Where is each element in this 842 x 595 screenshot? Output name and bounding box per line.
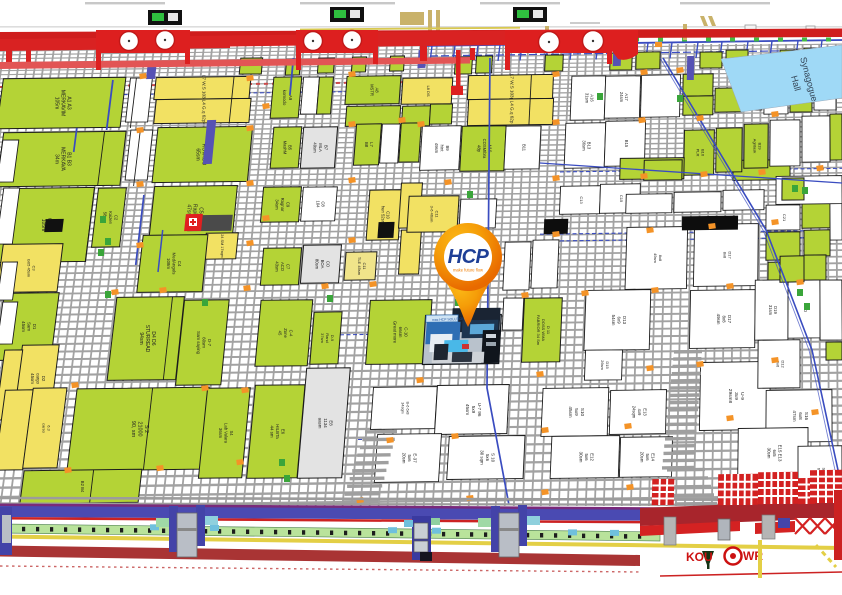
svg-text:cargo: cargo: [36, 373, 41, 385]
svg-text:C10: C10: [386, 211, 391, 219]
svg-text:45sm: 45sm: [568, 406, 573, 417]
svg-text:A8: A8: [375, 87, 380, 93]
svg-text:CO: CO: [325, 261, 330, 268]
svg-text:HILBTa: HILBTa: [275, 424, 280, 439]
svg-text:C15: C15: [619, 195, 624, 203]
svg-text:49sm: 49sm: [313, 142, 318, 153]
svg-text:D1: D1: [32, 324, 37, 330]
svg-text:D-7: D-7: [207, 339, 212, 347]
svg-text:105m: 105m: [53, 97, 59, 110]
svg-text:45sm: 45sm: [465, 404, 470, 415]
svg-text:L7 W.S 103p: L7 W.S 103p: [202, 75, 207, 102]
svg-text:STURREAD: STURREAD: [144, 325, 150, 353]
svg-text:65sm: 65sm: [194, 148, 200, 160]
svg-text:24sqm: 24sqm: [632, 406, 637, 419]
svg-text:C-10: C-10: [404, 327, 409, 337]
svg-text:B1 B3: B1 B3: [66, 152, 72, 166]
svg-text:A16: A16: [590, 94, 595, 102]
svg-text:E6: E6: [281, 429, 286, 435]
svg-text:30sm: 30sm: [578, 452, 583, 463]
svg-text:S4: S4: [229, 430, 234, 436]
svg-text:60sm: 60sm: [202, 337, 207, 348]
svg-text:L4 G.q 62p: L4 G.q 62p: [202, 100, 207, 123]
svg-text:21000: 21000: [137, 422, 143, 437]
svg-text:B2 B4: B2 B4: [80, 481, 85, 493]
svg-text:U-7 96: U-7 96: [477, 403, 482, 417]
svg-text:PLR: PLR: [695, 149, 700, 157]
svg-text:B8: B8: [364, 142, 369, 148]
svg-text:44 sm: 44 sm: [269, 426, 274, 438]
svg-text:MSTR: MSTR: [369, 84, 374, 96]
svg-text:B5: B5: [288, 145, 293, 151]
svg-text:49sm: 49sm: [434, 143, 439, 154]
svg-text:B7: B7: [323, 145, 328, 151]
svg-text:TLE 45sm: TLE 45sm: [357, 257, 362, 276]
svg-text:5x6: 5x6: [645, 453, 650, 461]
svg-text:3-6 46sm: 3-6 46sm: [429, 206, 434, 223]
svg-text:43sm: 43sm: [275, 261, 280, 272]
svg-text:5x6: 5x6: [584, 453, 589, 461]
svg-text:5x9: 5x9: [574, 408, 579, 416]
svg-text:20sm: 20sm: [639, 452, 644, 463]
svg-text:24sm: 24sm: [619, 92, 624, 103]
svg-text:carso: carso: [41, 423, 46, 434]
svg-text:Zone: Zone: [283, 328, 288, 338]
svg-text:6x9: 6x9: [617, 316, 622, 324]
svg-text:L4 G.q 62p: L4 G.q 62p: [510, 101, 515, 124]
svg-text:A17: A17: [624, 93, 629, 101]
svg-text:E15 E13: E15 E13: [778, 445, 783, 462]
svg-text:L7: L7: [369, 142, 374, 147]
svg-text:D13: D13: [622, 316, 627, 325]
svg-text:A1 A3: A1 A3: [66, 96, 72, 110]
svg-text:Lab Valara: Lab Valara: [224, 423, 229, 444]
svg-text:30sm: 30sm: [766, 448, 771, 459]
svg-text:24 SM 17sqm: 24 SM 17sqm: [220, 234, 224, 257]
svg-text:D19: D19: [773, 306, 778, 314]
svg-text:MERKAVIM: MERKAVIM: [60, 90, 66, 116]
svg-text:U-9: U-9: [739, 392, 745, 400]
svg-text:8x8: 8x8: [722, 252, 727, 259]
svg-text:45sm: 45sm: [21, 321, 26, 332]
svg-text:hen 52sm: hen 52sm: [380, 206, 385, 225]
svg-text:MashM: MashM: [282, 141, 287, 155]
svg-text:S10: S10: [580, 408, 585, 417]
svg-text:B-6 6x8: B-6 6x8: [406, 401, 410, 414]
svg-text:6x8: 6x8: [798, 412, 803, 420]
svg-text:108m: 108m: [166, 258, 171, 269]
svg-text:E8: E8: [329, 420, 334, 426]
svg-text:37sm: 37sm: [320, 333, 325, 343]
svg-text:C4: C4: [177, 261, 182, 267]
svg-text:20sm: 20sm: [401, 453, 406, 464]
svg-text:L7 W.S 103p: L7 W.S 103p: [510, 74, 515, 101]
svg-text:104: 104: [315, 201, 320, 209]
svg-text:8x8: 8x8: [722, 315, 727, 323]
svg-text:90, sm: 90, sm: [130, 421, 136, 438]
svg-text:45: 45: [278, 331, 283, 336]
svg-text:5x9: 5x9: [471, 406, 476, 414]
svg-text:B13: B13: [587, 142, 592, 150]
svg-text:ACO: ACO: [280, 262, 285, 272]
svg-text:Sam saying: Sam saying: [196, 331, 201, 354]
svg-text:31sm: 31sm: [768, 305, 773, 316]
svg-text:C13: C13: [579, 196, 584, 204]
svg-text:Agritask: Agritask: [752, 139, 757, 153]
svg-text:36sm: 36sm: [218, 428, 223, 439]
svg-text:49sm: 49sm: [716, 314, 721, 325]
svg-text:E14: E14: [651, 453, 656, 461]
svg-text:47sm: 47sm: [792, 410, 797, 421]
svg-text:E-37: E-37: [413, 453, 418, 463]
svg-text:45sm: 45sm: [30, 373, 35, 384]
svg-text:MedAngels: MedAngels: [172, 253, 177, 276]
svg-text:make future flow: make future flow: [453, 268, 483, 273]
svg-text:HCP: HCP: [448, 246, 490, 268]
svg-text:COSMIbra: COSMIbra: [482, 139, 487, 159]
svg-text:C7: C7: [285, 264, 290, 270]
svg-text:1134: 1134: [323, 418, 328, 428]
svg-text:Ragnar: Ragnar: [280, 198, 285, 212]
svg-text:36sm: 36sm: [581, 140, 586, 151]
svg-text:D17: D17: [727, 315, 732, 324]
svg-text:B9: B9: [445, 145, 450, 151]
svg-text:29sm8: 29sm8: [727, 389, 733, 404]
svg-text:34m: 34m: [53, 154, 59, 164]
svg-text:D2: D2: [41, 376, 46, 382]
svg-text:54sm: 54sm: [611, 315, 616, 326]
svg-text:48p: 48p: [477, 145, 482, 153]
svg-text:5x6: 5x6: [485, 454, 490, 462]
svg-text:C21: C21: [782, 214, 787, 222]
svg-text:C9: C9: [285, 202, 290, 208]
svg-text:C5: C5: [198, 207, 204, 214]
svg-text:FABRIOR 34 Sm: FABRIOR 34 Sm: [536, 315, 541, 346]
svg-text:S16: S16: [804, 412, 809, 421]
svg-text:B15: B15: [624, 140, 629, 148]
svg-text:D4 D6: D4 D6: [150, 331, 156, 345]
svg-text:komodo: komodo: [282, 90, 287, 106]
svg-text:E12: E12: [590, 453, 595, 461]
svg-text:BOA: BOA: [320, 260, 325, 269]
svg-text:26sm: 26sm: [600, 360, 605, 370]
svg-text:34sqm: 34sqm: [401, 402, 405, 413]
svg-text:Kaizen: Kaizen: [108, 211, 113, 224]
svg-text:3x9: 3x9: [733, 392, 739, 400]
svg-text:A9: A9: [288, 95, 293, 101]
svg-text:49sm: 49sm: [653, 253, 658, 263]
svg-text:80sm: 80sm: [315, 259, 320, 270]
svg-text:34sm: 34sm: [275, 199, 280, 210]
svg-text:E13: E13: [642, 408, 647, 416]
svg-text:6x5: 6x5: [772, 449, 777, 457]
svg-text:aasm: aasm: [317, 418, 322, 429]
svg-text:Great more: Great more: [392, 321, 397, 344]
svg-text:94sm: 94sm: [138, 332, 144, 344]
svg-text:G05 45sm: G05 45sm: [26, 259, 31, 278]
svg-text:MLA: MLA: [318, 143, 323, 152]
svg-text:MERKAVA: MERKAVA: [60, 147, 66, 171]
svg-text:L8 DS: L8 DS: [426, 85, 431, 96]
svg-text:66sm: 66sm: [398, 327, 403, 338]
svg-text:Sam: Sam: [27, 322, 32, 331]
svg-text:30 sqm: 30 sqm: [479, 450, 484, 465]
svg-text:C8: C8: [321, 201, 326, 207]
svg-text:KOU: KOU: [686, 550, 713, 564]
svg-text:5x6: 5x6: [407, 454, 412, 462]
svg-text:4x9: 4x9: [637, 409, 642, 416]
svg-text:C-4: C-4: [288, 330, 293, 337]
svg-text:31sm: 31sm: [584, 93, 589, 104]
svg-text:S 10: S 10: [491, 453, 496, 463]
svg-text:B11: B11: [522, 144, 527, 152]
svg-text:C2: C2: [113, 215, 118, 221]
svg-text:hint: hint: [440, 145, 445, 153]
